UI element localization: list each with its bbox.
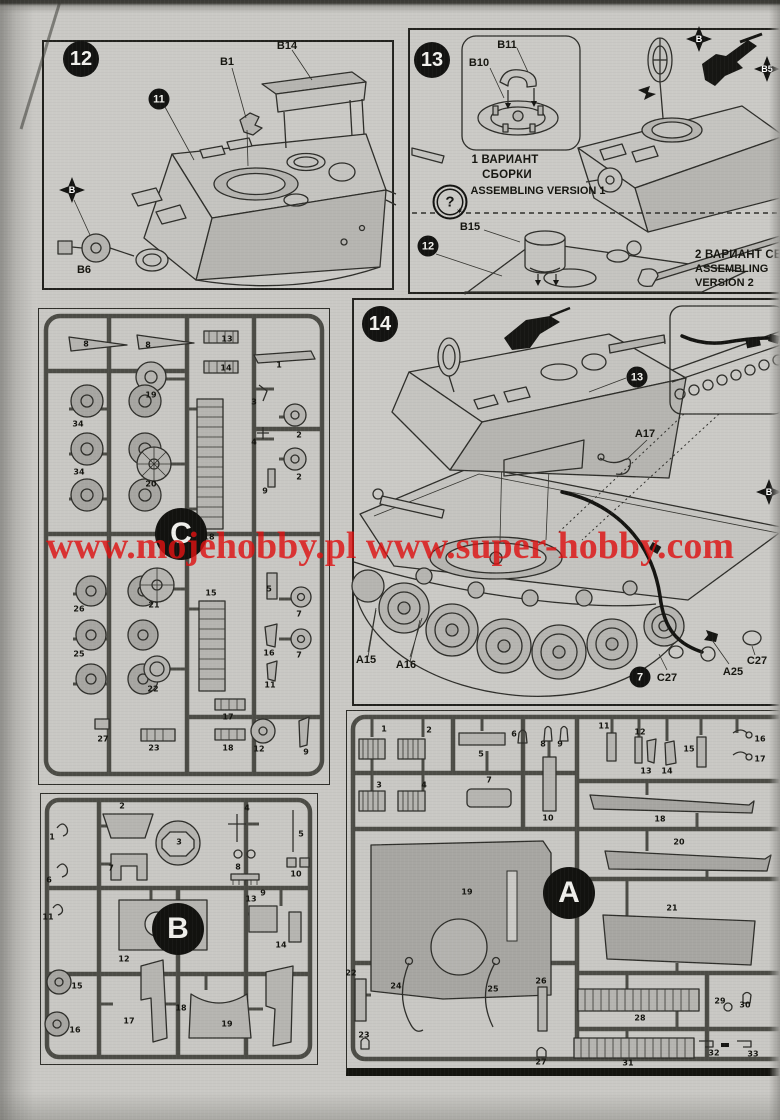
part-number-label: 11 <box>42 913 53 922</box>
part-number-label: 28 <box>634 1014 645 1023</box>
part-label-b15: B15 <box>460 221 480 233</box>
part-number-label: 3 <box>251 398 257 407</box>
part-number-label: 7 <box>486 776 492 785</box>
part-number-label: 8 <box>83 340 89 349</box>
part-number-label: 27 <box>97 735 108 744</box>
part-number-label: 3 <box>376 781 382 790</box>
part-label-b14: B14 <box>277 40 297 52</box>
part-number-label: 2 <box>426 726 432 735</box>
question-mark-badge: ? ✶ <box>433 185 468 220</box>
part-number-label: 19 <box>145 391 156 400</box>
step14-tank-illustration <box>354 300 780 704</box>
part-number-label: 16 <box>69 1026 80 1035</box>
step12-turret-illustration <box>44 42 394 288</box>
part-number-label: 15 <box>205 589 216 598</box>
part-number-label: 31 <box>622 1059 633 1068</box>
part-number-label: 10 <box>542 814 553 823</box>
part-number-label: 12 <box>118 955 129 964</box>
part-number-label: 13 <box>245 895 256 904</box>
part-number-label: 7 <box>296 610 302 619</box>
part-number-label: 19 <box>461 888 472 897</box>
part-number-label: 30 <box>739 1001 750 1010</box>
part-number-label: 23 <box>358 1031 369 1040</box>
part-number-label: 26 <box>535 977 546 986</box>
part-number-label: 1 <box>276 361 282 370</box>
part-number-label: 34 <box>72 420 83 429</box>
part-number-label: 25 <box>487 985 498 994</box>
step-13-panel: 13 B11 B10 1 ВАРИАНТ СБОРКИ ASSEMBLING V… <box>408 28 780 294</box>
part-number-label: 8 <box>235 863 241 872</box>
part-b1-clamp <box>240 113 262 135</box>
scan-edge-bottom <box>0 1092 780 1120</box>
part-number-label: 34 <box>73 468 84 477</box>
part-number-label: 9 <box>557 740 563 749</box>
step-ref-badge: 11 <box>149 89 170 110</box>
step-number-badge: 13 <box>414 42 450 78</box>
variant1-caption-en: ASSEMBLING VERSION 1 <box>470 185 605 197</box>
step-ref-badge: 12 <box>418 236 439 257</box>
part-number-label: 21 <box>666 904 677 913</box>
part-label-c27-2: C27 <box>747 655 767 667</box>
variant2-caption-ru: 2 ВАРИАНТ СБОРКИ <box>695 249 780 261</box>
part-number-label: 5 <box>266 585 272 594</box>
part-number-label: 17 <box>222 713 233 722</box>
part-label-a16: A16 <box>396 659 416 671</box>
part-number-label: 7 <box>108 864 114 873</box>
part-number-label: 9 <box>262 487 268 496</box>
part-number-label: 14 <box>661 767 672 776</box>
sprue-letter-a: A <box>543 867 595 919</box>
part-number-label: 17 <box>123 1017 134 1026</box>
part-number-label: 1 <box>381 725 387 734</box>
part-number-label: 2 <box>296 431 302 440</box>
sprue-letter-b: B <box>152 903 204 955</box>
part-label-b6: B6 <box>77 264 91 276</box>
part-label-a25: A25 <box>723 666 743 678</box>
part-number-label: 15 <box>683 745 694 754</box>
part-number-label: 9 <box>260 889 266 898</box>
part-number-label: 9 <box>303 748 309 757</box>
part-number-label: 15 <box>71 982 82 991</box>
variant1-caption-ru1: 1 ВАРИАНТ <box>472 154 539 166</box>
part-number-label: 33 <box>747 1050 758 1059</box>
part-number-label: 22 <box>345 969 356 978</box>
part-number-label: 24 <box>390 982 401 991</box>
part-label-a17: A17 <box>635 428 655 440</box>
part-number-label: 2 <box>296 473 302 482</box>
sprue-c-panel: C 8 8 13 14 1 19 34 34 20 18 3 4 2 2 9 2… <box>38 308 330 785</box>
part-number-label: 6 <box>511 730 517 739</box>
part-number-label: 5 <box>298 830 304 839</box>
part-number-label: 21 <box>148 601 159 610</box>
variant1-caption-ru2: СБОРКИ <box>482 169 532 181</box>
part-number-label: 18 <box>175 1004 186 1013</box>
part-number-label: 8 <box>145 341 151 350</box>
part-number-label: 11 <box>598 722 609 731</box>
part-number-label: 2 <box>119 802 125 811</box>
part-number-label: 7 <box>296 651 302 660</box>
part-number-label: 20 <box>673 838 684 847</box>
question-mark: ? <box>445 194 454 211</box>
part-number-label: 3 <box>176 838 182 847</box>
part-number-label: 13 <box>640 767 651 776</box>
part-number-label: 16 <box>263 649 274 658</box>
part-number-label: 32 <box>708 1049 719 1058</box>
part-number-label: 1 <box>49 833 55 842</box>
turret-drawing <box>132 134 396 286</box>
part-number-label: 16 <box>754 735 765 744</box>
part-number-label: 25 <box>73 650 84 659</box>
part-label-b10: B10 <box>469 57 489 69</box>
part-number-label: 8 <box>540 740 546 749</box>
part-number-label: 26 <box>73 605 84 614</box>
sprue-b-panel: B 1 2 3 4 5 6 7 8 9 10 11 12 13 14 15 16… <box>40 793 318 1065</box>
variant2-caption-en2: VERSION 2 <box>695 277 754 289</box>
part-number-label: 18 <box>222 744 233 753</box>
detail-inset-box <box>462 36 580 150</box>
part-number-label: 10 <box>290 870 301 879</box>
variant2-caption-en1: ASSEMBLING <box>695 263 768 275</box>
part-label-c27: C27 <box>657 672 677 684</box>
step-number-badge: 14 <box>362 306 398 342</box>
scan-edge-right <box>769 0 780 1120</box>
sprue-letter-c: C <box>155 508 207 560</box>
part-number-label: 4 <box>251 438 257 447</box>
part-number-label: 4 <box>421 781 427 790</box>
step-14-panel: 14 13 A17 A15 A16 7 C27 A25 C27 B <box>352 298 780 706</box>
part-label-a15: A15 <box>356 654 376 666</box>
part-number-label: 13 <box>221 335 232 344</box>
question-star-icon: ✶ <box>457 209 463 216</box>
part-number-label: 18 <box>654 815 665 824</box>
part-number-label: 14 <box>275 941 286 950</box>
part-number-label: 11 <box>264 681 275 690</box>
step-ref-badge-7: 7 <box>630 667 651 688</box>
part-number-label: 14 <box>220 364 231 373</box>
part-number-label: 4 <box>244 804 250 813</box>
part-number-label: 12 <box>253 745 264 754</box>
scan-edge-top <box>0 0 780 13</box>
part-number-label: 27 <box>535 1058 546 1067</box>
scanned-instruction-sheet: 12 11 B14 B1 B B6 <box>0 0 780 1120</box>
part-number-label: 29 <box>714 997 725 1006</box>
step-number-badge: 12 <box>63 41 99 77</box>
part-number-label: 5 <box>478 750 484 759</box>
part-label-b1: B1 <box>220 56 234 68</box>
part-number-label: 20 <box>145 480 156 489</box>
part-label-b11: B11 <box>497 39 517 51</box>
part-number-label: 12 <box>634 728 645 737</box>
part-number-label: 23 <box>148 744 159 753</box>
step-ref-badge: 13 <box>627 367 648 388</box>
step-12-panel: 12 11 B14 B1 B B6 <box>42 40 394 290</box>
part-number-label: 22 <box>147 685 158 694</box>
sprue-a-panel: A 1 2 3 4 5 6 7 8 9 10 11 12 13 14 15 16… <box>346 710 780 1076</box>
part-number-label: 17 <box>754 755 765 764</box>
scan-edge-left <box>0 0 34 1120</box>
turret-drawing <box>392 308 686 478</box>
part-number-label: 19 <box>221 1020 232 1029</box>
part-number-label: 6 <box>46 876 52 885</box>
